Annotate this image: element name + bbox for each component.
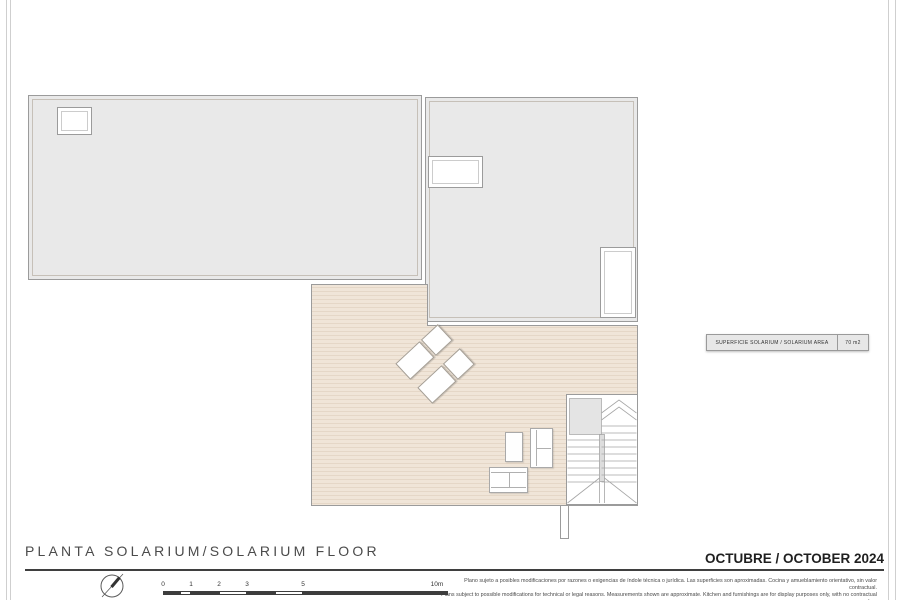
two-seat-sofa [489,467,528,493]
page-frame-line [6,0,7,600]
scale-tick-label: 2 [217,581,221,588]
scale-segment [180,591,191,595]
sofa-cushion-line [509,472,510,487]
skylight-inner-line [61,111,88,131]
scale-segment [275,591,303,595]
scale-tick-label: 3 [245,581,249,588]
skylight-square [57,107,92,135]
wall-stub [560,505,569,539]
staircase [566,394,638,505]
staircase-drawing [567,395,637,504]
scale-segment [219,591,247,595]
skylight-inner-line [604,251,632,314]
disclaimer-line-en: Plans subject to possible modifications … [437,592,877,600]
scale-tick-label: 1 [189,581,193,588]
sofa-cushion-line [536,448,551,449]
title-rule [25,569,884,571]
page-frame-line [888,0,889,600]
scale-segment [247,591,275,595]
scale-tick-label: 0 [161,581,165,588]
disclaimer-line-es: Plano sujeto a posibles modificaciones p… [437,578,877,592]
area-summary-table: SUPERFICIE SOLARIUM / SOLARIUM AREA 70 m… [706,334,869,351]
two-seat-sofa [530,428,553,468]
area-label: SUPERFICIE SOLARIUM / SOLARIUM AREA [706,334,838,351]
plan-date: OCTUBRE / OCTOBER 2024 [705,551,884,566]
floor-plan-page: { "document": { "title": "PLANTA SOLARIU… [0,0,899,600]
page-frame-line [895,0,896,600]
sofa-divider [491,487,526,488]
disclaimer-text: Plano sujeto a posibles modificaciones p… [437,578,877,600]
scale-segment [303,591,448,595]
coffee-table [505,432,523,462]
scale-tick-label: 10m [431,581,444,588]
stair-shaft-opening [600,247,636,318]
skylight-rect [428,156,483,188]
page-frame-line [10,0,11,600]
north-compass-icon [97,572,129,600]
scale-segment [163,591,180,595]
scale-segment [191,591,219,595]
scale-tick-label: 5 [301,581,305,588]
page-title: PLANTA SOLARIUM/SOLARIUM FLOOR [25,543,380,559]
skylight-inner-line [432,160,479,184]
area-value: 70 m2 [837,334,869,351]
